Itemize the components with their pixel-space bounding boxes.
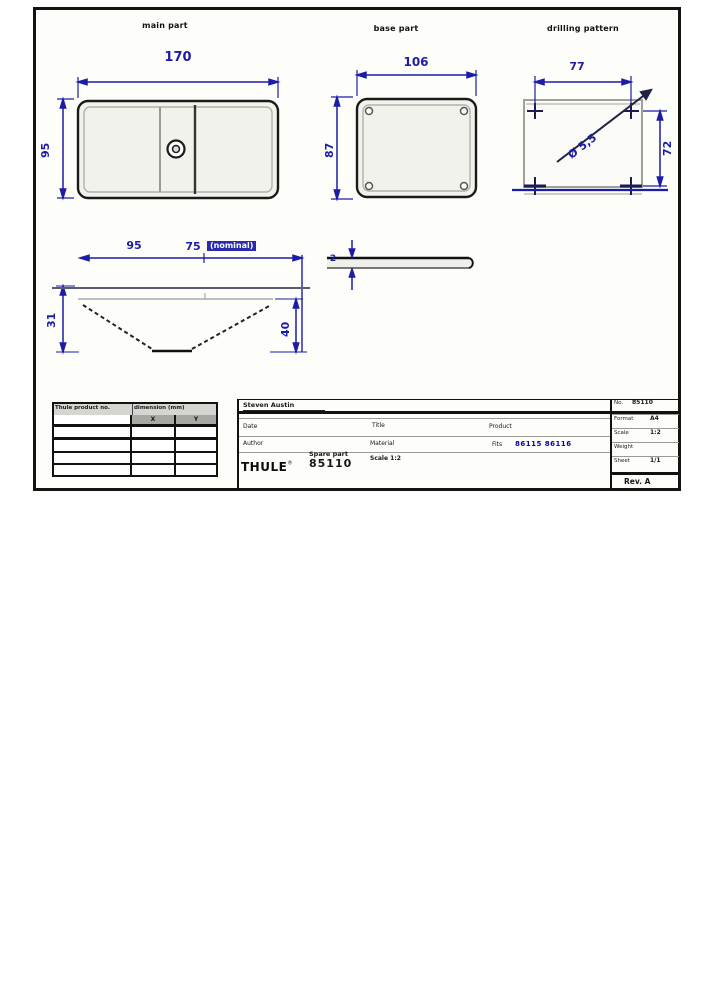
- field-material-label: Material: [370, 441, 394, 447]
- right-bottom-value: Rev. A: [624, 478, 650, 486]
- titleblock-row-line-1: [239, 418, 610, 419]
- right-no-value: 85110: [632, 400, 653, 406]
- drawing-page: main part base part drilling pattern 170…: [0, 0, 709, 1000]
- right-sep-3: [612, 442, 679, 443]
- base-width-dim: 106: [396, 56, 436, 68]
- side-main-dim-right: 40: [280, 322, 291, 337]
- table-row: [54, 437, 216, 450]
- base-side-fill: [327, 258, 471, 268]
- field-fits-label: Fits: [492, 442, 502, 448]
- titleblock-row-line-2: [239, 436, 610, 437]
- right-sep-2: [612, 428, 679, 429]
- side-main-dim-lines: [60, 253, 302, 352]
- right-sep-1: [612, 414, 679, 415]
- right-field-4-label: Sheet: [614, 459, 630, 465]
- field-title-label: Title: [372, 423, 385, 429]
- side-main-dim-b-note: (nominal): [207, 241, 256, 251]
- parts-table-subheader: X Y: [54, 415, 216, 424]
- doc-number: 85110: [309, 458, 352, 470]
- parts-table-header: Thule product no. dimension (mm): [54, 404, 216, 415]
- field-author-label: Author: [243, 441, 263, 447]
- right-field-3-label: Weight: [614, 445, 633, 451]
- parts-table-header-col1: Thule product no.: [54, 404, 133, 415]
- parts-table-sub-x: X: [132, 415, 176, 424]
- registered-mark: ®: [287, 461, 292, 467]
- side-main-bend-lines: [83, 305, 271, 349]
- base-part-drawing: [325, 20, 505, 215]
- author-name: Steven Austin: [243, 401, 325, 411]
- right-field-1-value: A4: [650, 416, 659, 422]
- doc-number-block: Spare part 85110: [309, 451, 352, 470]
- parts-table-sub-y: Y: [176, 415, 216, 424]
- side-main-dim-a: 95: [114, 240, 154, 251]
- fits-values[interactable]: 86115 86116: [515, 440, 572, 448]
- base-side-thickness-text: 2: [328, 255, 338, 264]
- right-field-2-label: Scale: [614, 431, 629, 437]
- right-no-label: No.: [614, 401, 623, 407]
- main-center-hole-inner: [173, 146, 180, 153]
- titleblock-top-border: [237, 399, 679, 400]
- right-sep-4: [612, 456, 679, 457]
- side-main-dim-left: 31: [46, 313, 57, 328]
- right-field-4-value: 1/1: [650, 458, 661, 464]
- base-side-view-drawing: [320, 235, 490, 305]
- side-main-extension-lines: [56, 286, 307, 352]
- brand-logo: THULE®: [241, 456, 292, 475]
- drill-width-dim: 77: [557, 61, 597, 72]
- table-row: [54, 424, 216, 437]
- side-main-dim-b: 75: [183, 241, 203, 252]
- main-height-dim: 95: [40, 143, 51, 158]
- right-thick-bar: [612, 472, 679, 475]
- parts-table-header-col2: dimension (mm): [133, 404, 216, 415]
- base-height-dim: 87: [324, 143, 335, 158]
- table-row: [54, 451, 216, 463]
- field-date-label: Date: [243, 424, 257, 430]
- base-part-outline: [357, 99, 476, 197]
- table-row: [54, 463, 216, 475]
- parts-table: Thule product no. dimension (mm) X Y: [52, 402, 218, 477]
- right-field-2-value: 1:2: [650, 430, 661, 436]
- main-side-view-drawing: [45, 235, 315, 365]
- titleblock-row-line-3: [239, 452, 610, 453]
- field-scale-label: Scale 1:2: [370, 456, 401, 462]
- right-field-1-label: Format: [614, 417, 633, 423]
- main-width-dim: 170: [158, 51, 198, 64]
- drill-height-dim: 72: [662, 141, 673, 156]
- field-product-label: Product: [489, 424, 512, 430]
- drilling-pattern-drawing: [505, 20, 705, 215]
